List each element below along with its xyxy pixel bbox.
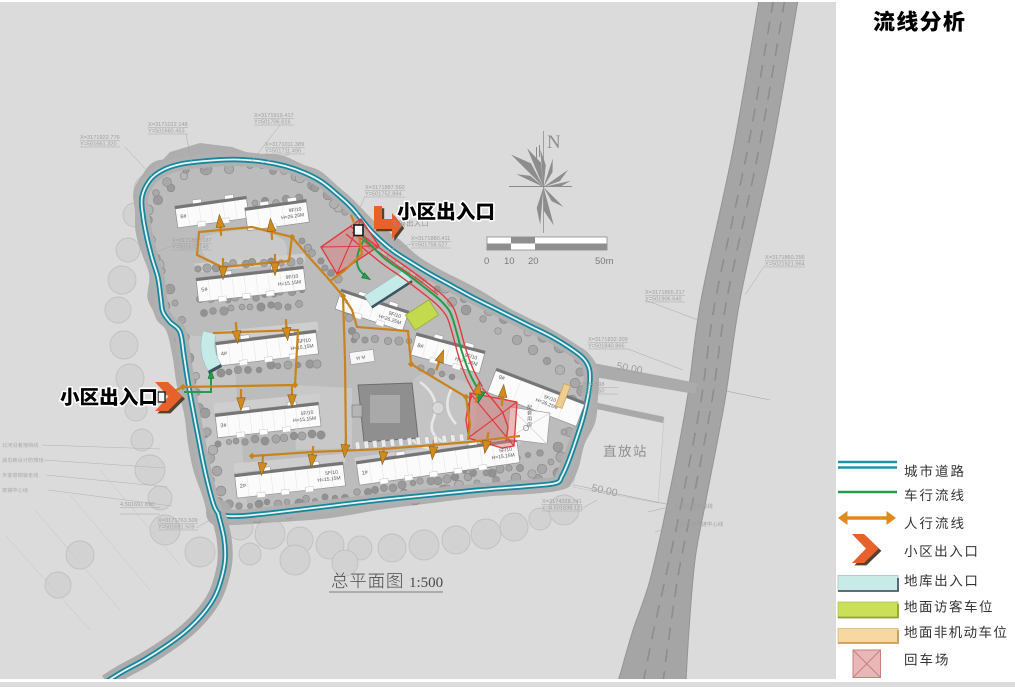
svg-text:X=3171887.187: X=3171887.187 [172, 238, 212, 244]
svg-text:20: 20 [528, 256, 539, 267]
svg-text:Y=501840.865: Y=501840.865 [588, 344, 625, 350]
svg-text:X=3174328.741: X=3174328.741 [542, 499, 582, 505]
svg-text:Y=4.501838.121: Y=4.501838.121 [542, 506, 583, 512]
svg-text:10: 10 [504, 256, 515, 267]
svg-text:Y=501661.320: Y=501661.320 [80, 142, 117, 148]
svg-text:Y=501670.748: Y=501670.748 [172, 245, 209, 251]
svg-text:X=3171865.217: X=3171865.217 [645, 290, 685, 296]
svg-text:Y=501706.616: Y=501706.616 [254, 120, 291, 126]
svg-text:X=3171922.776: X=3171922.776 [80, 135, 120, 141]
svg-text:Y=501660.453: Y=501660.453 [148, 129, 185, 135]
svg-text:X=3171832.309: X=3171832.309 [588, 337, 628, 343]
svg-text:50m: 50m [595, 256, 614, 267]
svg-text:50018.150: 50018.150 [578, 389, 604, 395]
svg-text:X=3171880.411: X=3171880.411 [411, 236, 450, 242]
svg-text:0: 0 [484, 256, 489, 267]
svg-text:Y=5021921.964: Y=5021921.964 [765, 262, 805, 268]
svg-text:X=3171012.148: X=3171012.148 [148, 122, 188, 128]
svg-text:20524.598: 20524.598 [578, 382, 604, 388]
svg-text:X=3171763.509: X=3171763.509 [158, 518, 198, 524]
svg-text:Y=501758.527: Y=501758.527 [411, 243, 448, 249]
svg-text:Y=501711.490: Y=501711.490 [265, 149, 301, 155]
svg-text:X=3171860.256: X=3171860.256 [765, 255, 805, 261]
svg-text:Y=501906.640: Y=501906.640 [645, 297, 682, 303]
svg-text:N: N [547, 132, 561, 153]
svg-text:1:500: 1:500 [409, 575, 443, 591]
svg-text:Y=501752.894: Y=501752.894 [365, 192, 402, 198]
svg-text:X=3171919.417: X=3171919.417 [254, 113, 294, 119]
svg-text:X=3171011.389: X=3171011.389 [265, 142, 304, 148]
svg-text:X=3171887.560: X=3171887.560 [365, 185, 405, 191]
svg-text:Y=501691.509: Y=501691.509 [158, 525, 195, 531]
